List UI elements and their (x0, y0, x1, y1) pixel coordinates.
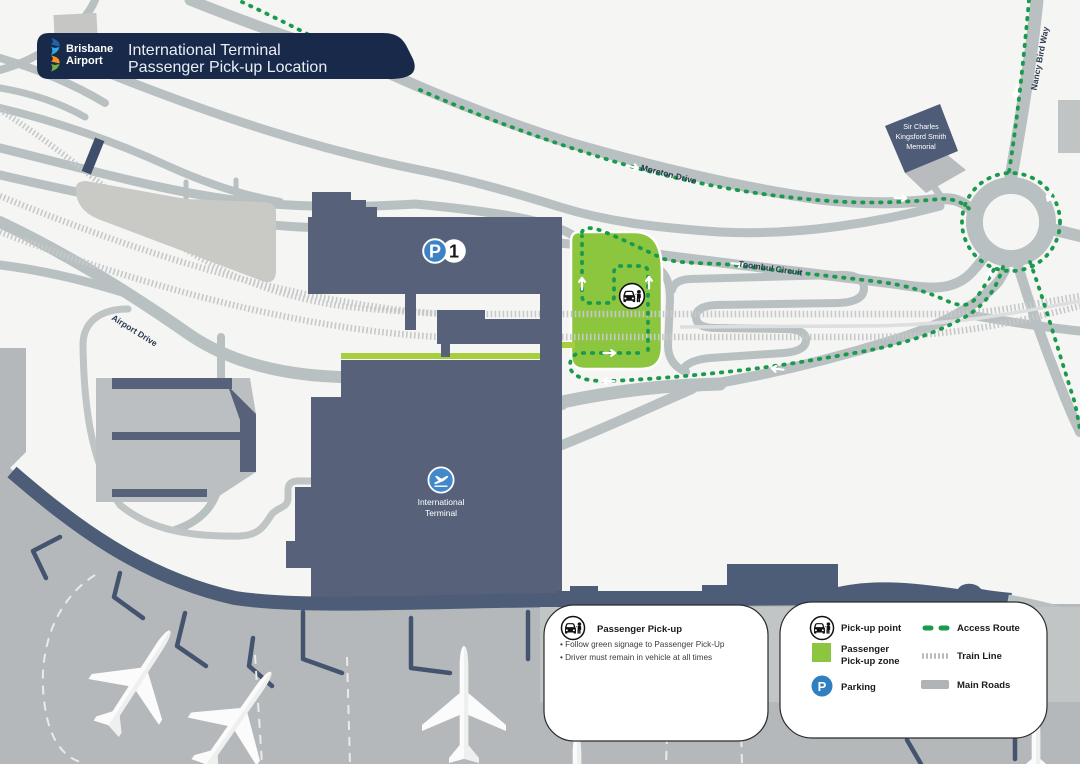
svg-text:Parking: Parking (841, 682, 876, 693)
svg-text:Passenger Pick-up: Passenger Pick-up (597, 624, 682, 635)
svg-text:International: International (418, 497, 465, 507)
svg-text:P: P (818, 679, 827, 694)
svg-text:Pick-up point: Pick-up point (841, 623, 902, 634)
svg-text:1: 1 (449, 242, 459, 262)
svg-text:Airport: Airport (66, 55, 103, 67)
svg-text:Sir Charles: Sir Charles (903, 122, 939, 131)
svg-text:P: P (429, 242, 441, 262)
svg-text:Main Roads: Main Roads (957, 680, 1010, 691)
svg-text:Train Line: Train Line (957, 651, 1002, 662)
svg-text:Passenger: Passenger (841, 644, 889, 655)
svg-text:Brisbane: Brisbane (66, 43, 113, 55)
svg-text:Kingsford Smith: Kingsford Smith (896, 132, 947, 141)
svg-text:Memorial: Memorial (906, 142, 936, 151)
svg-text:• Follow green signage to Pass: • Follow green signage to Passenger Pick… (560, 640, 725, 649)
svg-text:• Driver must remain in vehicl: • Driver must remain in vehicle at all t… (560, 653, 712, 662)
svg-text:Pick-up zone: Pick-up zone (841, 656, 900, 667)
svg-text:International Terminal: International Terminal (128, 42, 281, 59)
svg-text:Passenger Pick-up Location: Passenger Pick-up Location (128, 59, 327, 76)
svg-text:Terminal: Terminal (425, 508, 457, 518)
svg-text:Access Route: Access Route (957, 623, 1020, 634)
